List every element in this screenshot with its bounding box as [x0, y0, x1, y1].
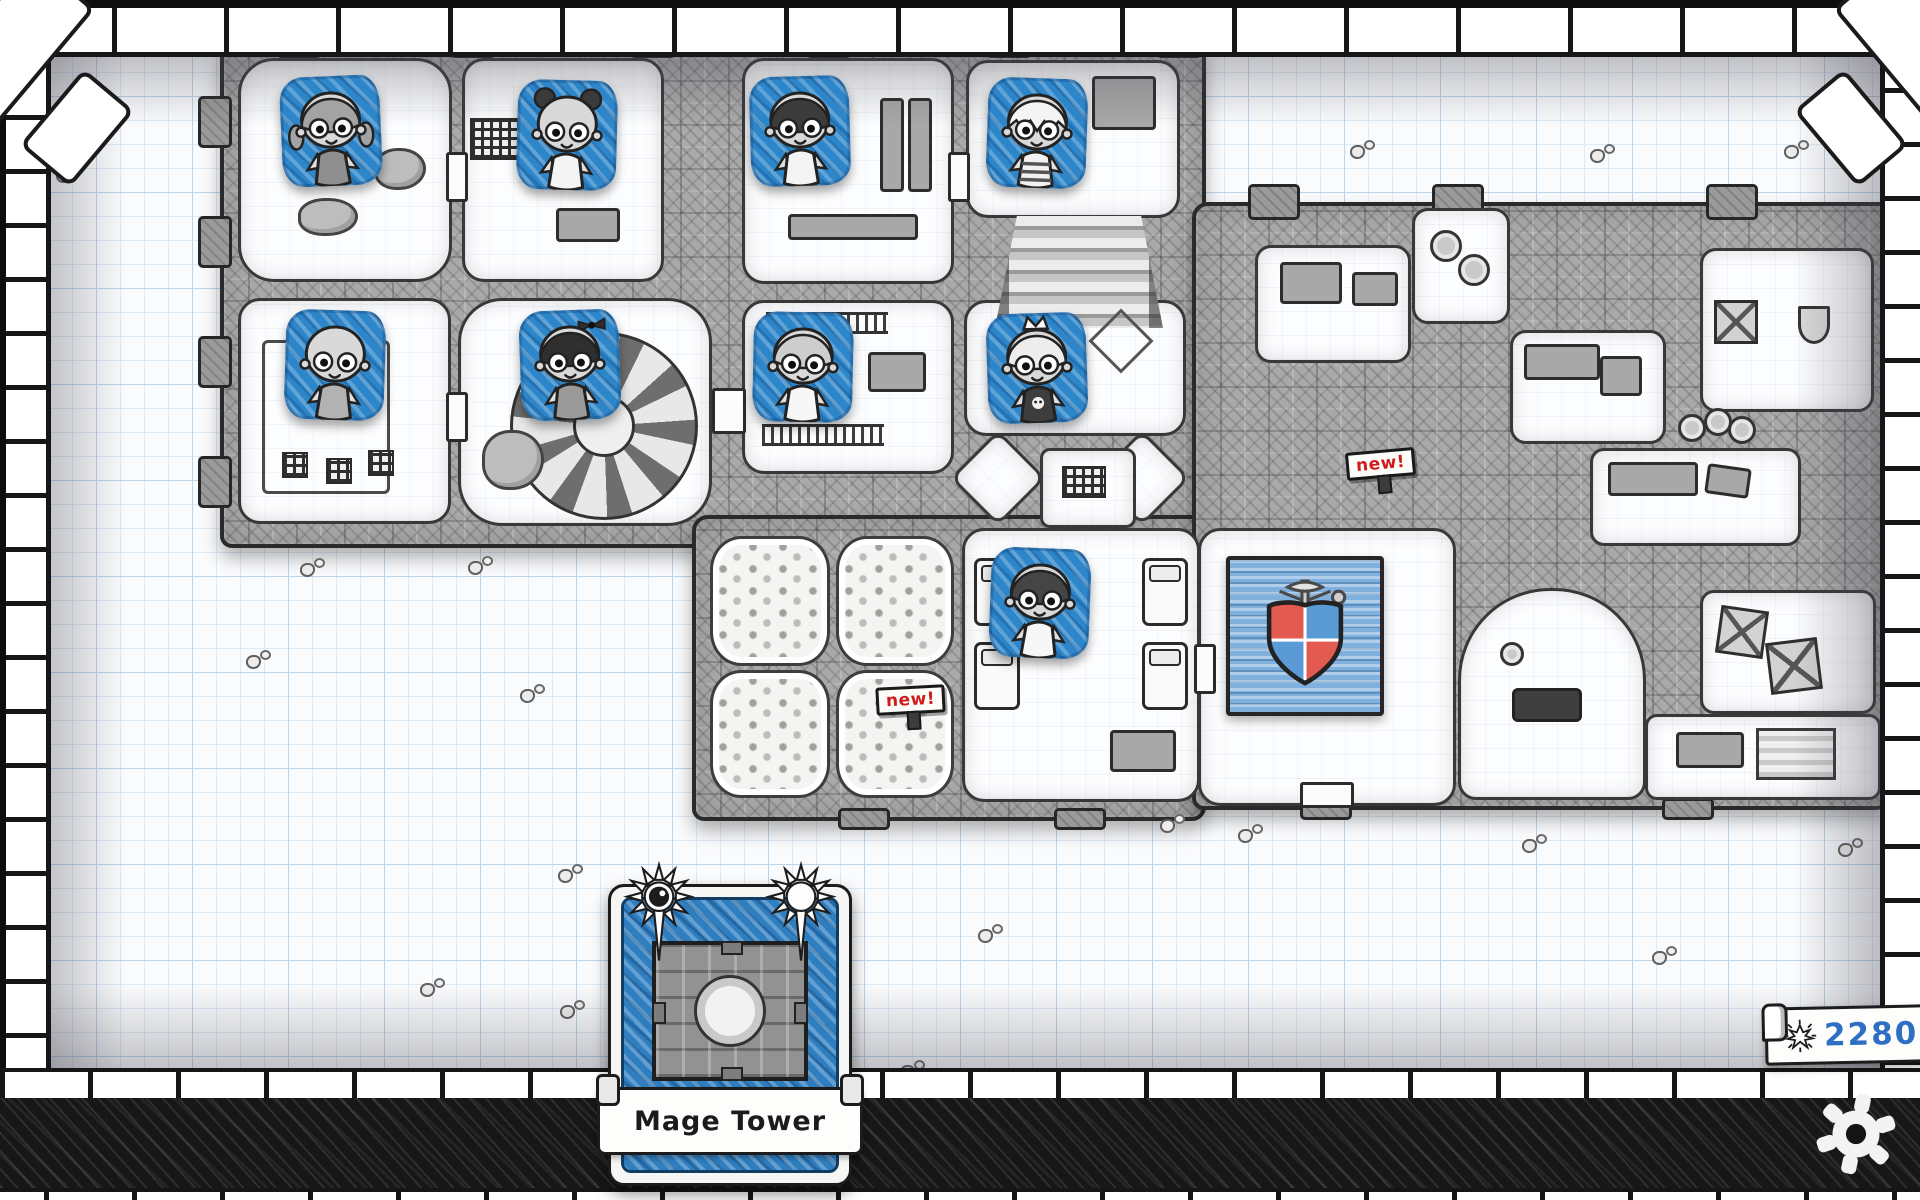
guild-crest-shield: [1249, 574, 1361, 698]
floor-tile: [368, 450, 394, 476]
hero-white-spiky-boy[interactable]: [985, 76, 1089, 189]
floor-tile: [282, 452, 308, 478]
wall-tower: [1662, 798, 1714, 820]
bench: [1704, 463, 1752, 499]
work-table: [868, 352, 926, 392]
cauldron: [1500, 642, 1524, 666]
pebble-doodle: [420, 978, 446, 998]
hero-mouse-ears-girl[interactable]: [516, 79, 619, 192]
barrel-pile: [1678, 408, 1756, 444]
pebble-doodle: [1160, 814, 1186, 834]
card-sun-right-icon: [759, 861, 843, 971]
frame-brick-bottom-lower: [0, 1188, 1920, 1200]
doorway: [948, 152, 970, 202]
pebble-doodle: [560, 1000, 586, 1020]
pebble-doodle: [246, 650, 272, 670]
stool: [1600, 356, 1642, 396]
wall-tower: [198, 96, 232, 148]
wall-tower: [198, 216, 232, 268]
pebble-doodle: [1838, 838, 1864, 858]
workbench: [1524, 344, 1600, 380]
garden-plot[interactable]: [710, 670, 830, 798]
hero-grey-bob-girl[interactable]: [279, 74, 384, 188]
pebble-doodle: [1350, 140, 1376, 160]
barrel: [1458, 254, 1490, 286]
pebble-doodle: [978, 924, 1004, 944]
organ-console: [1092, 76, 1156, 130]
chest: [1676, 732, 1744, 768]
new-badge: new!: [875, 684, 945, 716]
crate: [1715, 605, 1769, 659]
window-grate: [1062, 466, 1106, 498]
card-title: Mage Tower: [634, 1106, 826, 1137]
wall-tower: [1054, 808, 1106, 830]
hero-dark-messy-boy[interactable]: [749, 75, 852, 188]
gear-icon[interactable]: [1814, 1092, 1898, 1176]
kitchen-table: [556, 208, 620, 242]
doorway: [1194, 644, 1216, 694]
crate: [1714, 300, 1758, 344]
pebble-doodle: [468, 556, 494, 576]
hero-dark-neat-boy[interactable]: [988, 546, 1092, 660]
gold-amount: 2280: [1824, 1015, 1919, 1053]
frame-hatched-band: [0, 1098, 1920, 1188]
wall-tower: [198, 456, 232, 508]
wall-tower: [1248, 184, 1300, 220]
gold-counter: 2280: [1764, 1004, 1920, 1065]
wall-tower: [198, 336, 232, 388]
floor-tile: [326, 458, 352, 484]
hall-pillar: [908, 98, 932, 192]
bed: [1142, 642, 1188, 710]
pebble-doodle: [1590, 144, 1616, 164]
anvil: [1512, 688, 1582, 722]
hero-bald-kid[interactable]: [283, 308, 386, 421]
card-title-banner: Mage Tower: [597, 1087, 863, 1155]
frame-brick-left: [0, 0, 51, 1200]
hall-bench: [788, 214, 918, 240]
wall-shield: [1798, 306, 1830, 344]
crate: [1765, 637, 1823, 695]
chest: [1352, 272, 1398, 306]
new-badge: new!: [1345, 447, 1416, 481]
garden-plot[interactable]: [710, 536, 830, 666]
pebble-doodle: [300, 558, 326, 578]
doorway: [446, 152, 468, 202]
barrel: [1430, 230, 1462, 262]
doorway: [446, 392, 468, 442]
pebble-doodle: [1238, 824, 1264, 844]
hall-door: [1300, 782, 1354, 808]
cabinet: [1280, 262, 1342, 304]
garden-plot[interactable]: [836, 536, 954, 666]
spark-icon: [1782, 1018, 1819, 1055]
closet: [1110, 730, 1176, 772]
hall-pillar: [880, 98, 904, 192]
floor-rug: [1756, 728, 1836, 780]
long-table: [1608, 462, 1698, 496]
pebble-doodle: [558, 864, 584, 884]
pebble-doodle: [1784, 140, 1810, 160]
kitchen-rack: [470, 118, 520, 160]
game-viewport: new!new! Mage Tower: [0, 0, 1920, 1200]
pebble-doodle: [520, 684, 546, 704]
wall-tower: [838, 808, 890, 830]
guild-crest-banner: [1226, 556, 1384, 716]
card-sun-left-icon: [617, 861, 701, 971]
frame-brick-top: [0, 0, 1920, 57]
hero-black-bob-girl[interactable]: [518, 308, 622, 421]
pebble-doodle: [1652, 946, 1678, 966]
room-card-mage-tower[interactable]: Mage Tower: [608, 884, 852, 1186]
bed: [1142, 558, 1188, 626]
doorway: [712, 388, 746, 434]
weapon-rack: [762, 424, 884, 446]
hero-grey-side-boy[interactable]: [752, 311, 854, 423]
hero-crowned-kid[interactable]: [985, 311, 1088, 424]
wall-tower: [1706, 184, 1758, 220]
pebble-doodle: [1522, 834, 1548, 854]
